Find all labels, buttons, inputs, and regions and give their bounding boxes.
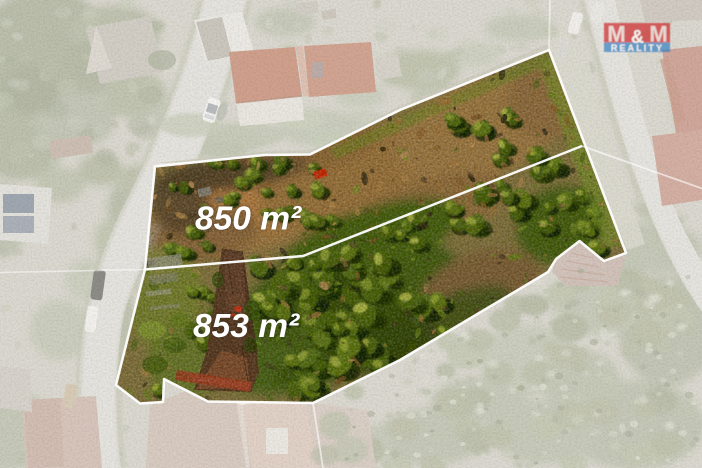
svg-text:&: & — [631, 27, 644, 47]
svg-text:853 m²: 853 m² — [193, 308, 300, 345]
svg-text:850 m²: 850 m² — [195, 201, 302, 238]
svg-text:M: M — [649, 22, 667, 47]
svg-text:M: M — [607, 22, 625, 47]
